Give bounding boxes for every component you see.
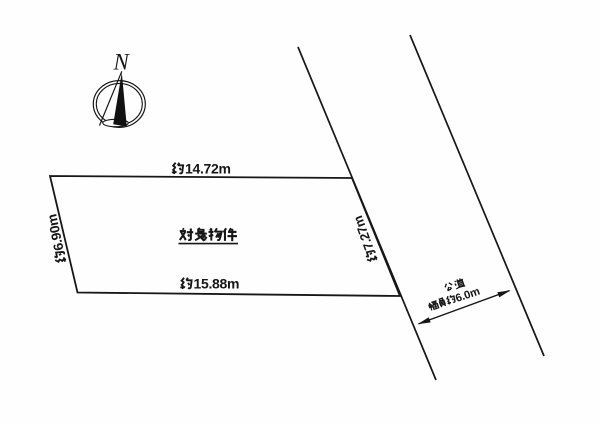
svg-text:14.72m: 14.72m bbox=[185, 161, 231, 177]
svg-text:N: N bbox=[113, 50, 131, 75]
svg-text:15.88m: 15.88m bbox=[194, 276, 240, 292]
